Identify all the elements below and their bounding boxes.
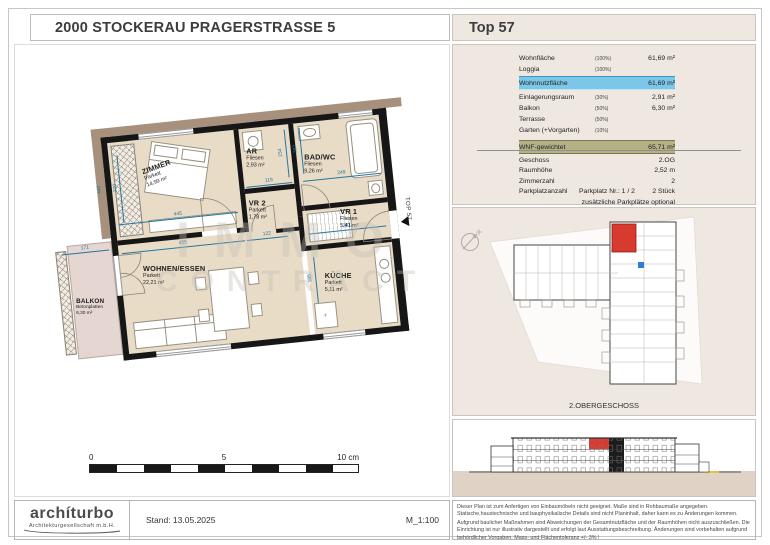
detail-row: ParkplatzanzahlParkplatz Nr.: 1 / 22 Stü… bbox=[519, 187, 675, 198]
divider bbox=[477, 150, 741, 151]
area-table: Wohnfläche(100%)61,69 m² Loggia(100%) Wo… bbox=[519, 53, 675, 154]
logo-swoosh bbox=[22, 529, 122, 534]
highlighted-unit bbox=[612, 224, 636, 252]
label-bad-wc: BAD/WC Fliesen 9,26 m² bbox=[304, 154, 335, 175]
area-row: Balkon(50%)6,30 m² bbox=[519, 103, 675, 114]
site-plan-map bbox=[454, 212, 754, 397]
detail-row: Zimmerzahl2 bbox=[519, 176, 675, 187]
detail-table: Geschoss2.OG Raumhöhe2,52 m Zimmerzahl2 … bbox=[519, 155, 675, 208]
dim-zimmer-h: 300 bbox=[113, 184, 119, 193]
scale-tick-0: 0 bbox=[89, 453, 93, 462]
scale-bar: 0 5 10 cm bbox=[89, 453, 359, 473]
footer-bar: archíturbo Architekturgesellschaft m.b.H… bbox=[14, 500, 450, 540]
area-data-panel: Wohnfläche(100%)61,69 m² Loggia(100%) Wo… bbox=[452, 44, 756, 205]
north-arrow-icon bbox=[462, 229, 483, 251]
area-row: Loggia(100%) bbox=[519, 64, 675, 75]
label-vr1: VR 1 Fliesen 5,41 m² bbox=[340, 208, 358, 229]
detail-row: Raumhöhe2,52 m bbox=[519, 166, 675, 177]
scale-bar-strip bbox=[89, 464, 359, 473]
label-wohnen-essen: WOHNEN/ESSEN Parkett 22,21 m² bbox=[143, 265, 205, 286]
dim-left-h: 440 bbox=[97, 185, 103, 194]
area-row: Einlagerungsraum(30%)2,91 m² bbox=[519, 92, 675, 103]
floor-plan: + bbox=[43, 97, 433, 386]
area-row: Wohnfläche(100%)61,69 m² bbox=[519, 53, 675, 64]
floor-plan-panel: + bbox=[14, 44, 450, 497]
blue-marker bbox=[638, 262, 644, 268]
detail-row: Geschoss2.OG bbox=[519, 155, 675, 166]
elevation-panel bbox=[452, 419, 756, 497]
company-logo-cell: archíturbo Architekturgesellschaft m.b.H… bbox=[15, 501, 130, 539]
unit-title-box: Top 57 bbox=[452, 14, 756, 41]
plan-scale: M_1:100 bbox=[406, 515, 439, 525]
page-title: 2000 STOCKERAU PRAGERSTRASSE 5 bbox=[55, 20, 336, 36]
disclaimer-text: Aufgrund baulicher Maßnahmen sind Abweic… bbox=[457, 520, 751, 540]
detail-row-note: zusätzliche Parkplätze optional bbox=[519, 197, 675, 208]
dim-ar-h: 234 bbox=[278, 148, 284, 157]
area-row-highlight: Wohnnutzfläche61,69 m² bbox=[519, 76, 675, 90]
dim-kueche-h: 185 bbox=[308, 274, 314, 283]
disclaimer-text: Dieser Plan ist zum Anfertigen von Einba… bbox=[457, 504, 751, 518]
stand-date: Stand: 13.05.2025 bbox=[146, 515, 215, 525]
area-row-weighted: WNF-gewichtet65,71 m² bbox=[519, 140, 675, 154]
area-row: Terrasse(50%) bbox=[519, 114, 675, 125]
area-row: Garten (+Vorgarten)(10%) bbox=[519, 125, 675, 136]
scale-tick-5: 5 bbox=[222, 453, 226, 462]
header-title-box: 2000 STOCKERAU PRAGERSTRASSE 5 bbox=[30, 14, 450, 41]
disclaimer-box: Dieser Plan ist zum Anfertigen von Einba… bbox=[452, 500, 756, 540]
unit-title: Top 57 bbox=[469, 20, 515, 36]
label-ar: AR Fliesen 2,93 m² bbox=[246, 148, 264, 169]
label-kueche: KÜCHE Parkett 5,11 m² bbox=[325, 272, 352, 293]
label-balkon: BALKON Betonplatten 6,30 m² bbox=[76, 298, 104, 316]
elevation-drawing bbox=[453, 420, 755, 496]
label-vr2: VR 2 Parkett 1,78 m² bbox=[249, 200, 267, 221]
scale-tick-10: 10 cm bbox=[337, 453, 359, 462]
site-caption: 2.OBERGESCHOSS bbox=[453, 401, 755, 410]
dim-bad-h: 387 bbox=[293, 145, 299, 154]
site-plan-panel: 2.OBERGESCHOSS bbox=[452, 207, 756, 416]
company-logo: archíturbo bbox=[30, 506, 114, 522]
